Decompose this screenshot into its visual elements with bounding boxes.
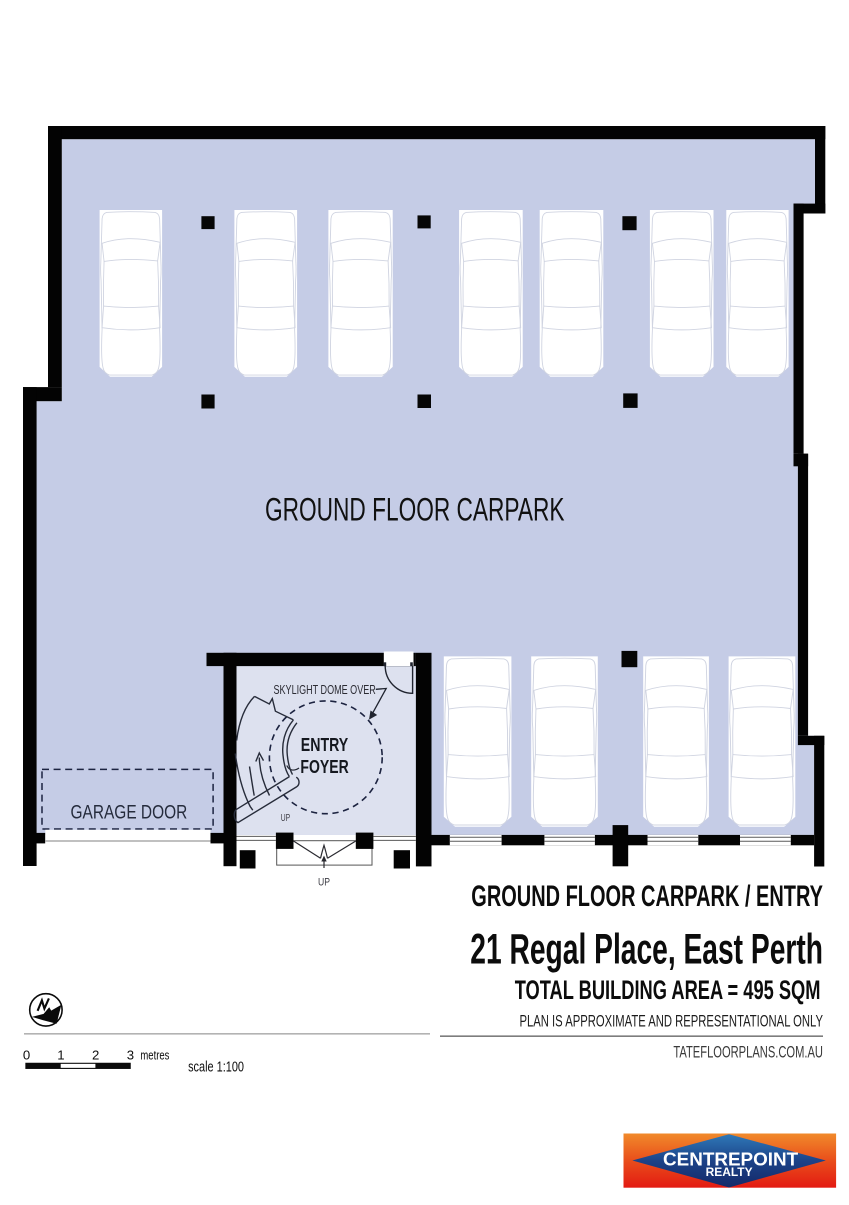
svg-text:SKYLIGHT DOME OVER: SKYLIGHT DOME OVER [274, 683, 376, 697]
svg-text:FOYER: FOYER [300, 757, 348, 777]
svg-text:REALTY: REALTY [706, 1165, 753, 1179]
svg-text:1: 1 [57, 1047, 64, 1062]
svg-text:GROUND FLOOR CARPARK / ENTRY: GROUND FLOOR CARPARK / ENTRY [471, 880, 823, 913]
svg-text:TATEFLOORPLANS.COM.AU: TATEFLOORPLANS.COM.AU [673, 1043, 823, 1062]
svg-text:2: 2 [92, 1047, 99, 1062]
svg-text:0: 0 [23, 1047, 30, 1062]
svg-text:GARAGE DOOR: GARAGE DOOR [71, 802, 188, 824]
svg-text:UP: UP [281, 813, 291, 824]
svg-text:3: 3 [127, 1047, 134, 1062]
svg-text:UP: UP [318, 877, 330, 889]
svg-text:GROUND FLOOR CARPARK: GROUND FLOOR CARPARK [265, 492, 565, 528]
svg-text:21 Regal Place, East Perth: 21 Regal Place, East Perth [470, 925, 823, 973]
svg-text:TOTAL BUILDING AREA = 495 SQM: TOTAL BUILDING AREA = 495 SQM [515, 975, 821, 1005]
svg-text:ENTRY: ENTRY [301, 735, 348, 755]
svg-text:PLAN IS APPROXIMATE AND REPRES: PLAN IS APPROXIMATE AND REPRESENTATIONAL… [520, 1011, 824, 1030]
svg-text:metres: metres [140, 1047, 169, 1062]
svg-text:scale 1:100: scale 1:100 [188, 1059, 244, 1076]
